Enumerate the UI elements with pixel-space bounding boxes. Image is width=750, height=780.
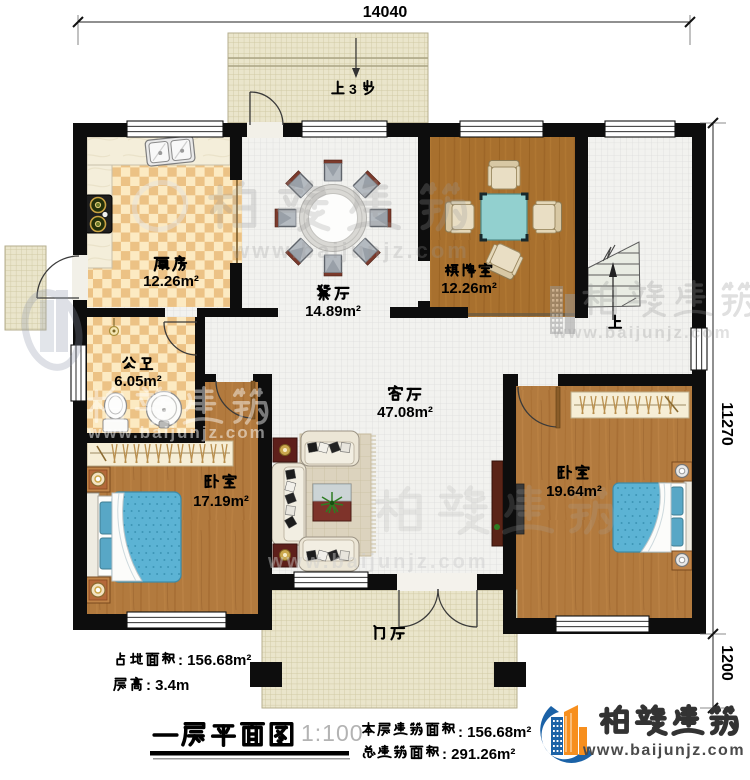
svg-text:14040: 14040 bbox=[363, 4, 408, 21]
svg-text:14.89m²: 14.89m² bbox=[305, 303, 361, 320]
svg-text:17.19m²: 17.19m² bbox=[193, 493, 249, 510]
svg-text:: 156.68m²: : 156.68m² bbox=[178, 652, 251, 669]
svg-text:3: 3 bbox=[349, 81, 357, 97]
svg-text:19.64m²: 19.64m² bbox=[546, 483, 602, 500]
svg-text:: 3.4m: : 3.4m bbox=[146, 677, 189, 694]
svg-text:: 291.26m²: : 291.26m² bbox=[442, 746, 515, 763]
svg-text:6.05m²: 6.05m² bbox=[114, 373, 162, 390]
svg-text:11270: 11270 bbox=[718, 402, 735, 446]
svg-text:12.26m²: 12.26m² bbox=[143, 273, 199, 290]
svg-text:www.baijunjz.com: www.baijunjz.com bbox=[552, 323, 732, 342]
svg-text:www.baijunjz.com: www.baijunjz.com bbox=[267, 551, 489, 573]
svg-text:www.baijunjz.com: www.baijunjz.com bbox=[231, 238, 470, 263]
svg-text:12.26m²: 12.26m² bbox=[441, 280, 497, 297]
svg-text:47.08m²: 47.08m² bbox=[377, 404, 433, 421]
svg-text:1:100: 1:100 bbox=[301, 720, 364, 746]
svg-text:www.baijunjz.com: www.baijunjz.com bbox=[87, 423, 267, 442]
svg-text:www.baijunjz.com: www.baijunjz.com bbox=[582, 742, 745, 759]
svg-text:1200: 1200 bbox=[718, 645, 735, 681]
svg-text:: 156.68m²: : 156.68m² bbox=[458, 724, 531, 741]
